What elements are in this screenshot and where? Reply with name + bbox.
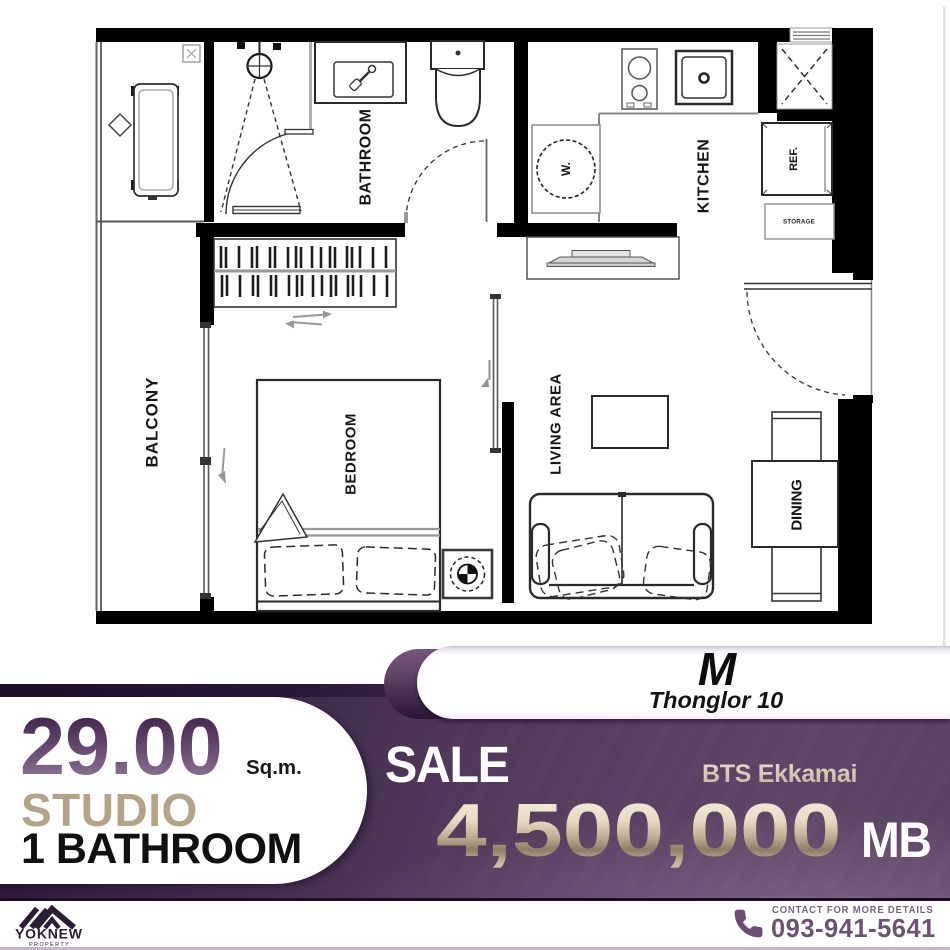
svg-text:REF.: REF.: [788, 147, 800, 171]
svg-text:YOKNEW: YOKNEW: [15, 926, 83, 942]
svg-text:STORAGE: STORAGE: [783, 219, 815, 226]
svg-text:KITCHEN: KITCHEN: [696, 139, 713, 214]
svg-text:PROPERTY: PROPERTY: [29, 942, 70, 948]
svg-text:BEDROOM: BEDROOM: [343, 413, 360, 495]
svg-text:BALCONY: BALCONY: [143, 376, 162, 467]
svg-text:DINING: DINING: [789, 479, 806, 530]
svg-text:W.: W.: [559, 162, 573, 176]
svg-text:BATHROOM: BATHROOM: [358, 108, 375, 205]
svg-text:LIVING AREA: LIVING AREA: [548, 373, 565, 475]
